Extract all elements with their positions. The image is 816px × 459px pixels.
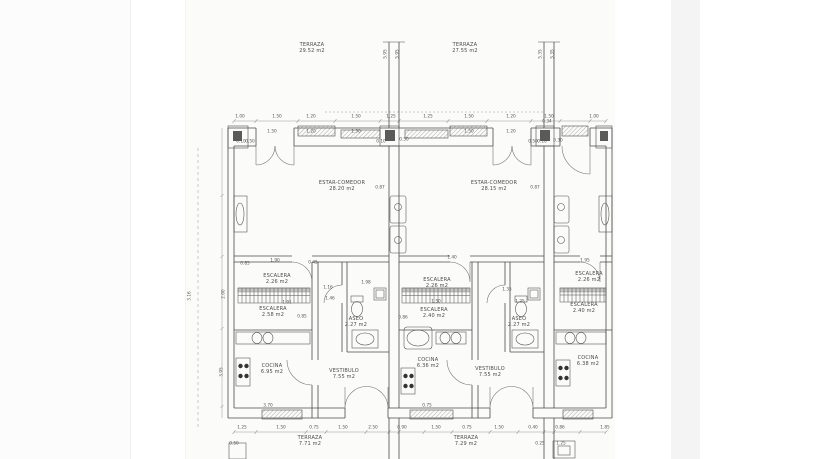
fixtures [229,196,612,459]
door-swings [256,146,600,408]
floor-plan-drawing [0,0,816,459]
stairs [238,288,606,303]
walls [228,42,612,459]
screenshot-stage: TERRAZA29.52 m2TERRAZA27.55 m2ESTAR-COME… [0,0,816,459]
dimension-lines [198,112,608,434]
